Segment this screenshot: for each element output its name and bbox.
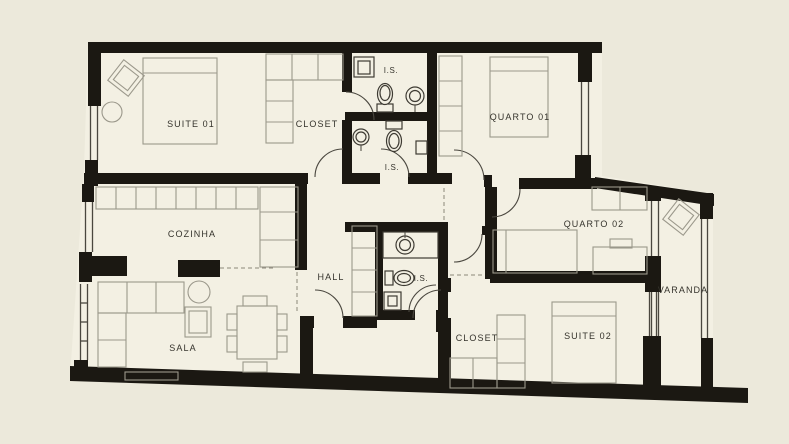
label-varanda: VARANDA (658, 285, 709, 295)
label-is-top: I.S. (384, 66, 398, 75)
toilet-bath1-tank (377, 104, 393, 112)
label-cozinha: COZINHA (168, 229, 216, 239)
toilet-bath2-tank (386, 121, 402, 129)
label-is-hall: I.S. (414, 274, 428, 283)
shelf-bath2 (416, 141, 427, 154)
floor-plan: SUITE 01 CLOSET I.S. I.S. QUARTO 01 COZI… (0, 0, 789, 444)
label-hall: HALL (318, 272, 345, 282)
label-is-second: I.S. (385, 163, 399, 172)
label-suite02: SUITE 02 (564, 331, 612, 341)
label-closet02: CLOSET (456, 333, 499, 343)
label-quarto02: QUARTO 02 (564, 219, 625, 229)
floor-plan-svg: SUITE 01 CLOSET I.S. I.S. QUARTO 01 COZI… (0, 0, 789, 444)
label-sala: SALA (169, 343, 196, 353)
label-suite01: SUITE 01 (167, 119, 215, 129)
toilet-bath3-tank (385, 271, 393, 285)
label-quarto01: QUARTO 01 (490, 112, 551, 122)
label-closet01: CLOSET (296, 119, 339, 129)
